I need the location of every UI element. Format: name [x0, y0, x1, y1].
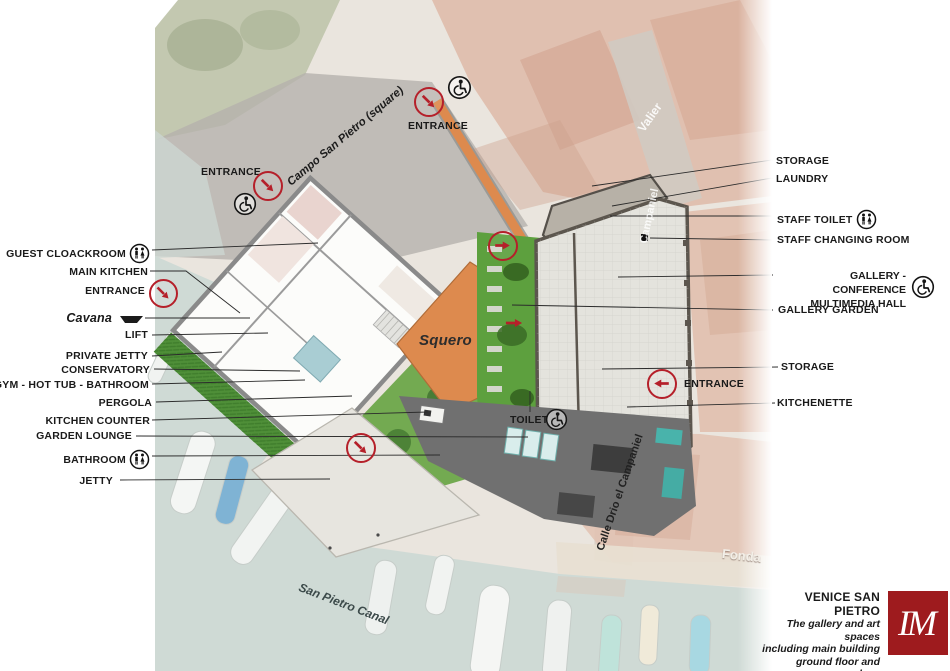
entrance-right-arrow-icon [647, 369, 677, 399]
label-garden-lounge: GARDEN LOUNGE [36, 430, 132, 442]
label-entrance-right: ENTRANCE [684, 378, 744, 390]
label-pergola: PERGOLA [99, 397, 152, 409]
restroom-icon [129, 243, 150, 264]
entrance-left-arrow-icon [149, 279, 178, 308]
logo-monogram: IM [898, 602, 938, 644]
restroom-icon [129, 449, 150, 470]
outdoor-kitchen-counter [419, 405, 445, 423]
label-staff-toilet: STAFF TOILET [777, 209, 877, 230]
floor-plan-sheet: GUEST CLOACKROOM MAIN KITCHEN ENTRANCE C… [0, 0, 950, 671]
project-subtitle-line: including main building [762, 643, 880, 656]
label-lift: LIFT [125, 329, 148, 341]
label-toilet: TOILET [510, 414, 548, 426]
route-arrow-right-icon [488, 231, 518, 261]
restroom-icon [856, 209, 877, 230]
wheelchair-icon [233, 192, 257, 216]
label-laundry: LAUNDRY [776, 173, 828, 185]
project-subtitle-line: ground floor and gardens [762, 656, 880, 671]
label-cavana: Cavana [66, 311, 112, 325]
wheelchair-icon [911, 275, 935, 299]
label-entrance-upper-left: ENTRANCE [201, 166, 261, 178]
label-squero: Squero [419, 332, 472, 349]
label-guest-cloackroom: GUEST CLOACKROOM [6, 243, 150, 264]
jetty-arrow-icon [346, 433, 376, 463]
wheelchair-icon [545, 408, 568, 431]
label-storage-lower: STORAGE [781, 361, 834, 373]
title-block: VENICE SAN PIETRO The gallery and art sp… [762, 590, 880, 671]
label-staff-changing-room: STAFF CHANGING ROOM [777, 234, 910, 246]
entrance-upper-left-arrow-icon [253, 171, 283, 201]
label-storage-top: STORAGE [776, 155, 829, 167]
project-subtitle-line: The gallery and art spaces [762, 618, 880, 643]
label-conservatory: CONSERVATORY [61, 364, 150, 376]
entrance-top-arrow-icon [414, 87, 444, 117]
project-title: VENICE SAN PIETRO [762, 590, 880, 618]
label-entrance-top: ENTRANCE [408, 120, 468, 132]
label-jetty: JETTY [79, 475, 113, 487]
cavana-boat-icon [120, 316, 143, 323]
small-arrow-right-icon [503, 314, 525, 332]
label-private-jetty: PRIVATE JETTY [66, 350, 148, 362]
label-gym-hot-tub-bathroom: GYM - HOT TUB - BATHROOM [0, 379, 149, 391]
label-kitchen-counter: KITCHEN COUNTER [46, 415, 151, 427]
label-entrance-left: ENTRANCE [85, 285, 145, 297]
label-gallery-garden: GALLERY GARDEN [778, 304, 879, 316]
label-main-kitchen: MAIN KITCHEN [69, 266, 148, 278]
wheelchair-icon [447, 75, 472, 100]
label-bathroom: BATHROOM [63, 449, 150, 470]
label-kitchenette: KITCHENETTE [777, 397, 853, 409]
im-logo: IM [888, 591, 948, 655]
